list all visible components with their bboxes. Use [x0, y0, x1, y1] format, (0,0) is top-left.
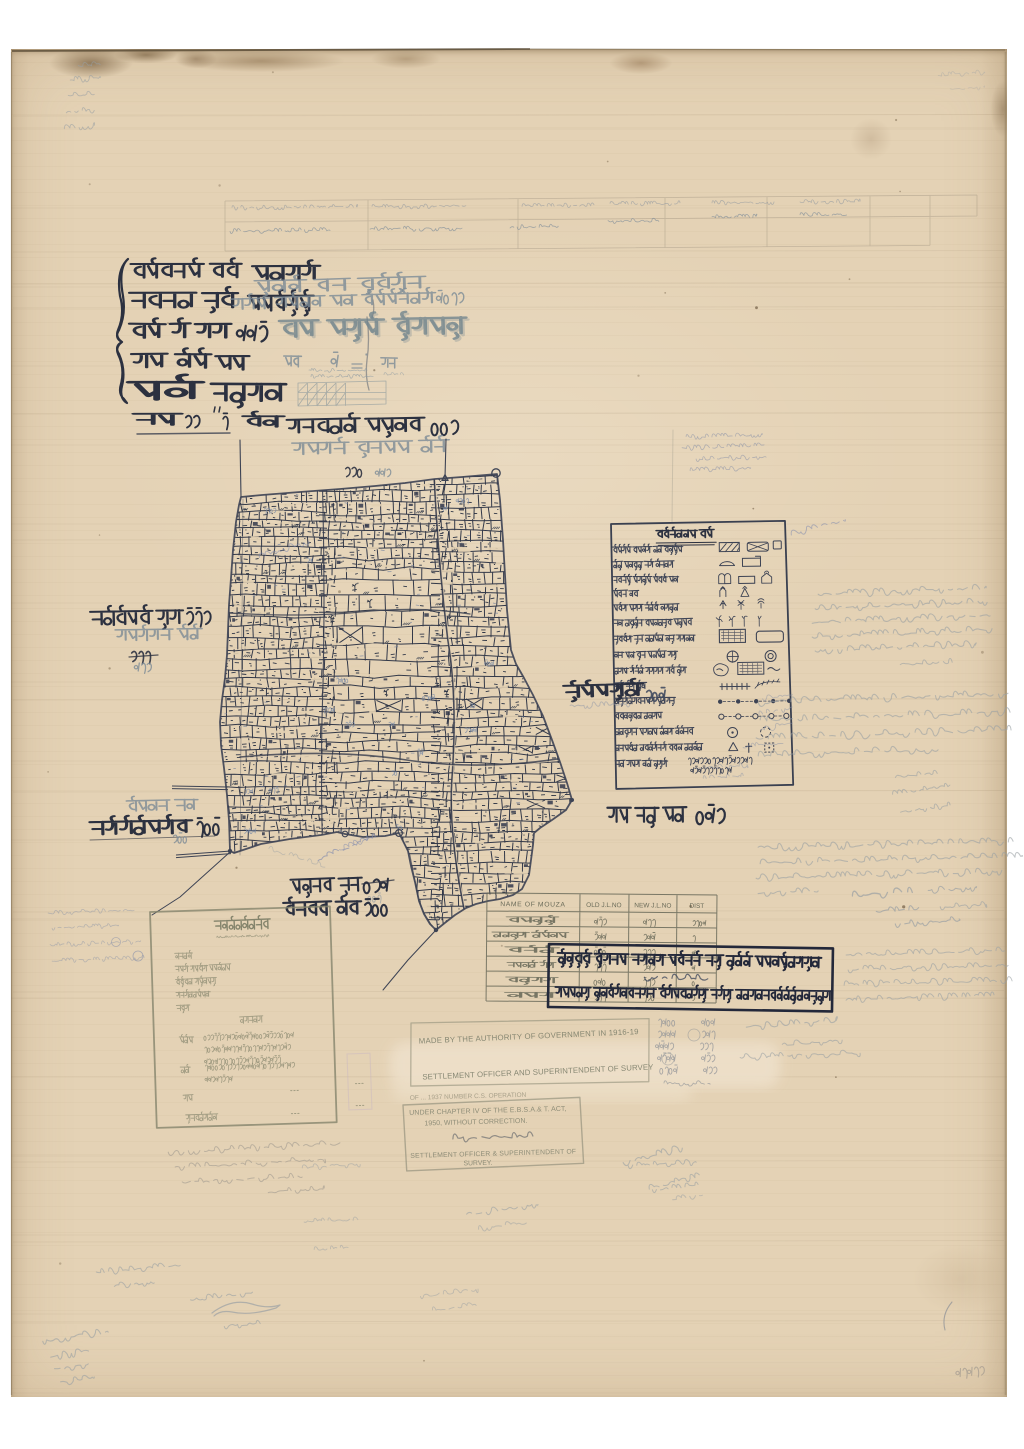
svg-text:NEW J.L.NO: NEW J.L.NO: [634, 902, 671, 909]
svg-text:SURVEY.: SURVEY.: [463, 1160, 492, 1168]
svg-text:SETTLEMENT OFFICER & SUPERINTE: SETTLEMENT OFFICER & SUPERINTENDENT OF: [410, 1148, 576, 1159]
svg-text:DIST: DIST: [689, 903, 704, 910]
svg-text:OLD J.L.NO: OLD J.L.NO: [586, 902, 621, 909]
svg-text:1950, WITHOUT CORRECTION.: 1950, WITHOUT CORRECTION.: [424, 1118, 527, 1128]
svg-text:UNDER CHAPTER IV OF THE E.B.S.: UNDER CHAPTER IV OF THE E.B.S.A.& T. ACT…: [409, 1106, 567, 1117]
svg-text:NAME OF MOUZA: NAME OF MOUZA: [500, 901, 565, 909]
